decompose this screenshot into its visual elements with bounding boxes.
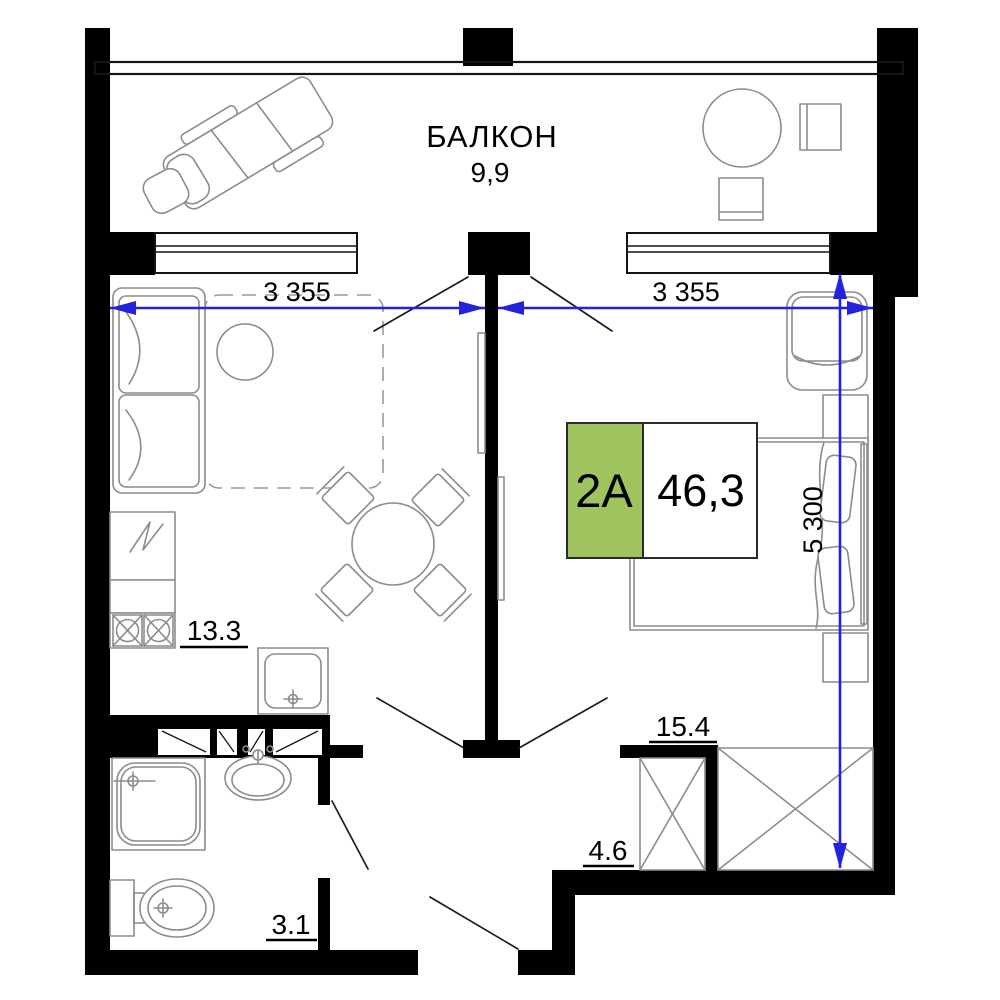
wall-left-main xyxy=(85,275,110,975)
wall-central xyxy=(485,275,498,742)
wall-balcony-right xyxy=(877,28,918,232)
balcony-label: БАЛКОН xyxy=(426,119,558,154)
wall-windowband-left xyxy=(85,232,155,275)
wall-windowband-center xyxy=(468,232,530,275)
wall-balcony-top-block xyxy=(463,28,513,66)
unit-code: 2A xyxy=(575,464,633,517)
wall-balcony-left xyxy=(85,28,110,232)
stove-icon xyxy=(110,613,175,648)
coffee-table-icon xyxy=(217,324,273,380)
sofa-icon xyxy=(113,288,205,493)
dimension-arrow-icon xyxy=(459,301,485,315)
dining-table-icon xyxy=(316,467,471,621)
kitchen-sink-icon xyxy=(258,648,328,714)
wall-right-main xyxy=(873,275,895,895)
wall-wardrobe-stub-v xyxy=(705,745,718,870)
chaise-lounge-icon xyxy=(139,64,342,222)
shower-icon xyxy=(112,758,205,850)
fridge-icon xyxy=(110,512,175,580)
dimension-arrow-icon xyxy=(498,301,524,315)
window-bedroom xyxy=(627,233,830,273)
wall-windowband-right xyxy=(830,232,918,275)
window-living xyxy=(155,233,357,273)
wall-bathroom-right-lower xyxy=(318,878,330,975)
wall-wardrobe-stub-h xyxy=(620,745,718,758)
floor-plan-canvas: 3 355 3 355 5 300 БАЛКОН 9,9 13.3 15.4 4… xyxy=(0,0,1000,1000)
floor-plan: 3 355 3 355 5 300 БАЛКОН 9,9 13.3 15.4 4… xyxy=(0,0,1000,1000)
wall-bathroom-right-upper xyxy=(318,715,330,805)
unit-area: 46,3 xyxy=(657,465,745,516)
wall-bottom-left xyxy=(85,950,418,975)
room-area-hallway: 4.6 xyxy=(589,835,628,866)
room-area-kitchen-living: 13.3 xyxy=(187,615,242,646)
balcony-table-icon xyxy=(703,89,781,167)
kitchen-counter xyxy=(110,580,175,613)
dimension-width-left: 3 355 xyxy=(263,277,331,307)
room-area-bedroom: 15.4 xyxy=(656,711,711,742)
dimension-arrow-icon xyxy=(833,273,847,299)
wall-hall-stub xyxy=(330,745,363,758)
balcony-area-label: 9,9 xyxy=(471,157,510,188)
wall-bathroom-top xyxy=(108,715,330,727)
toilet-icon xyxy=(110,879,214,937)
dimension-arrow-icon xyxy=(833,843,847,869)
dimension-depth-right: 5 300 xyxy=(798,486,828,554)
unit-label: 2A 46,3 xyxy=(567,423,757,558)
room-area-bathroom: 3.1 xyxy=(272,909,311,940)
wall-bottom-right xyxy=(552,870,893,895)
furniture-zone-dashed xyxy=(205,295,383,488)
dimension-width-right: 3 355 xyxy=(652,277,720,307)
wall-central-cap xyxy=(463,740,520,758)
door-swing-icon xyxy=(332,277,612,949)
